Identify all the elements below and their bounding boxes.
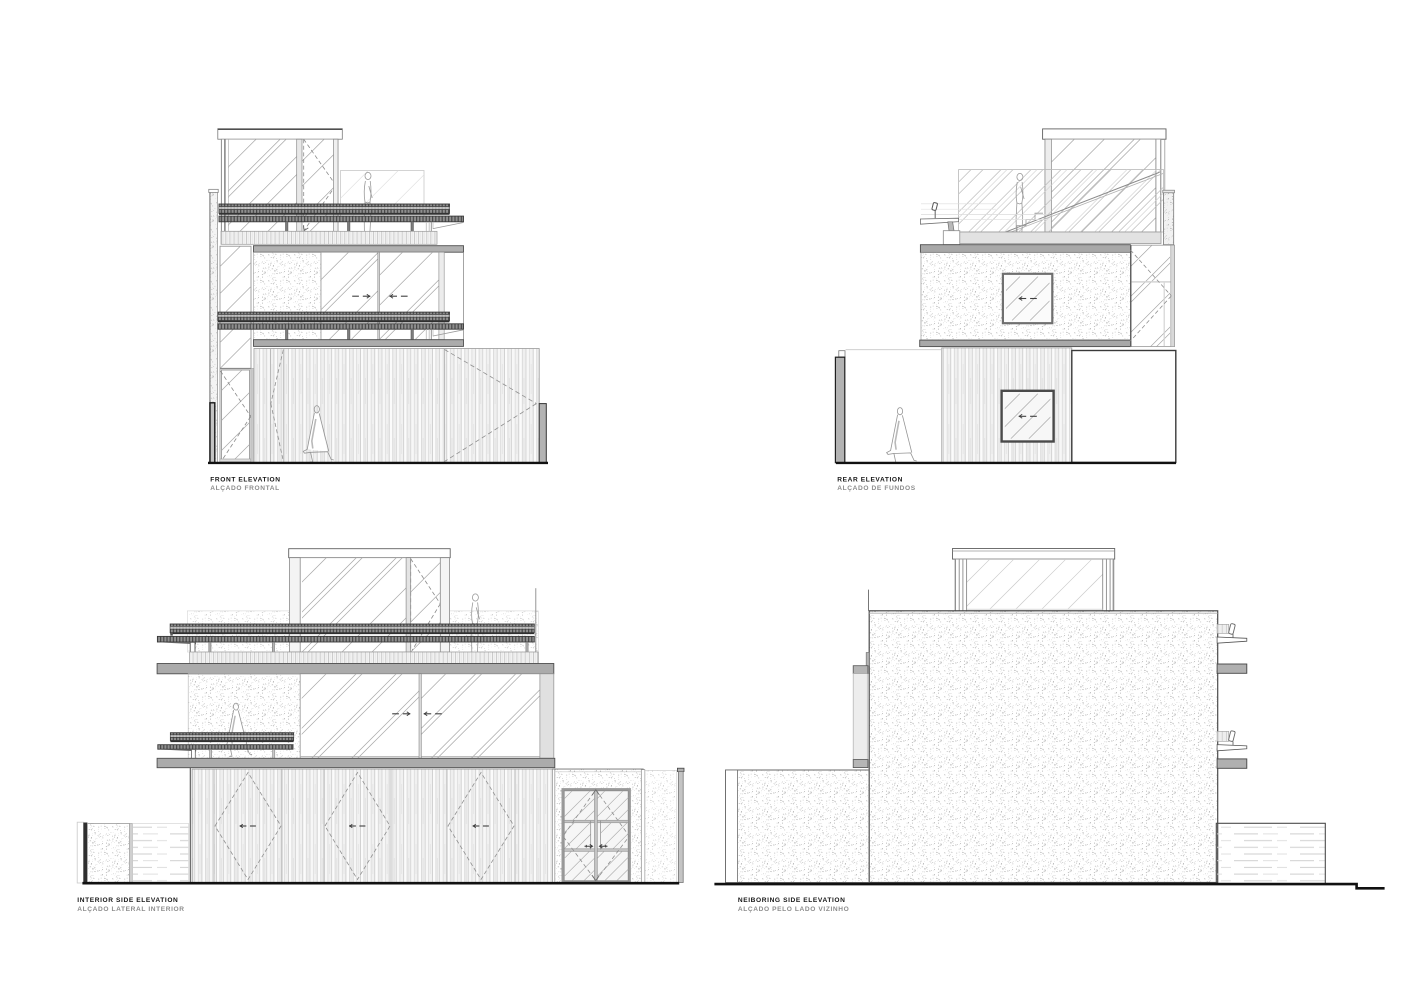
svg-text:ALÇADO DE FUNDOS: ALÇADO DE FUNDOS <box>837 485 915 492</box>
svg-text:NEIBORING SIDE ELEVATION: NEIBORING SIDE ELEVATION <box>738 897 846 904</box>
svg-text:INTERIOR SIDE ELEVATION: INTERIOR SIDE ELEVATION <box>77 897 178 904</box>
svg-text:ALÇADO FRONTAL: ALÇADO FRONTAL <box>210 485 279 492</box>
svg-text:ALÇADO LATERAL INTERIOR: ALÇADO LATERAL INTERIOR <box>77 906 184 913</box>
svg-text:ALÇADO PELO LADO VIZINHO: ALÇADO PELO LADO VIZINHO <box>738 906 849 913</box>
svg-text:REAR ELEVATION: REAR ELEVATION <box>837 477 903 484</box>
svg-text:FRONT ELEVATION: FRONT ELEVATION <box>210 477 280 484</box>
